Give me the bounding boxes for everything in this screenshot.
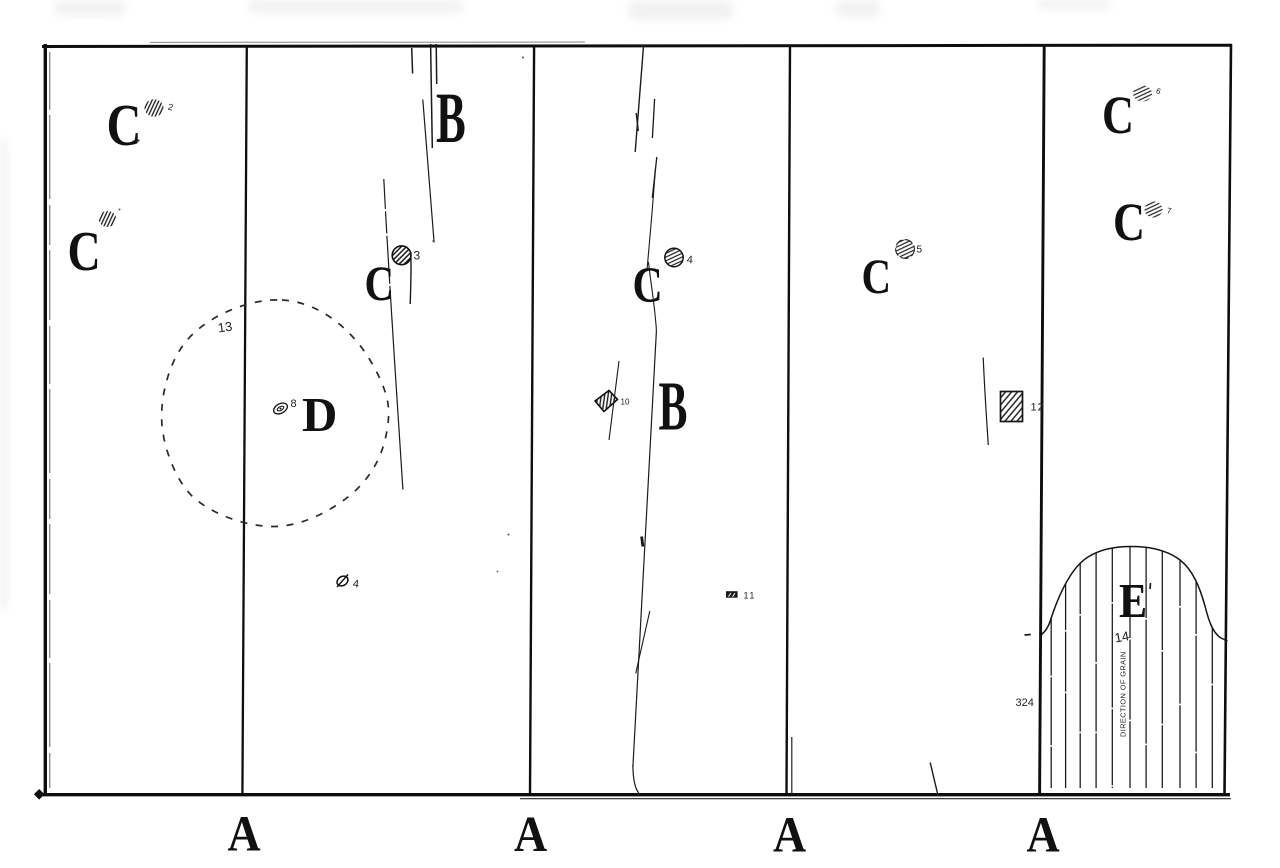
svg-text:324: 324 bbox=[1016, 697, 1034, 709]
svg-text:13: 13 bbox=[217, 319, 233, 336]
svg-text:E: E bbox=[1119, 573, 1147, 628]
svg-text:4: 4 bbox=[686, 254, 693, 266]
svg-text:C: C bbox=[862, 248, 892, 304]
svg-text:A: A bbox=[1027, 807, 1060, 863]
svg-text:D: D bbox=[302, 387, 337, 442]
svg-text:C: C bbox=[1102, 85, 1134, 145]
svg-text:11: 11 bbox=[744, 591, 756, 601]
svg-text:4: 4 bbox=[352, 578, 359, 591]
svg-text:10: 10 bbox=[621, 398, 630, 407]
svg-text:C: C bbox=[633, 257, 663, 314]
svg-text:A: A bbox=[228, 806, 261, 862]
svg-text:C: C bbox=[107, 93, 142, 159]
svg-text:5: 5 bbox=[917, 245, 923, 256]
svg-text:C: C bbox=[1113, 192, 1145, 252]
svg-text:14: 14 bbox=[1113, 628, 1130, 645]
svg-text:B: B bbox=[436, 78, 466, 157]
svg-text:DIRECTION OF GRAIN: DIRECTION OF GRAIN bbox=[1119, 651, 1128, 737]
svg-text:8: 8 bbox=[291, 398, 297, 410]
svg-text:B: B bbox=[659, 367, 688, 445]
svg-text:C: C bbox=[365, 255, 395, 311]
svg-text:C: C bbox=[68, 221, 101, 283]
svg-text:A: A bbox=[773, 807, 806, 863]
svg-text:3: 3 bbox=[414, 249, 421, 263]
svg-text:A: A bbox=[514, 807, 547, 863]
svg-text:12: 12 bbox=[1031, 402, 1045, 414]
